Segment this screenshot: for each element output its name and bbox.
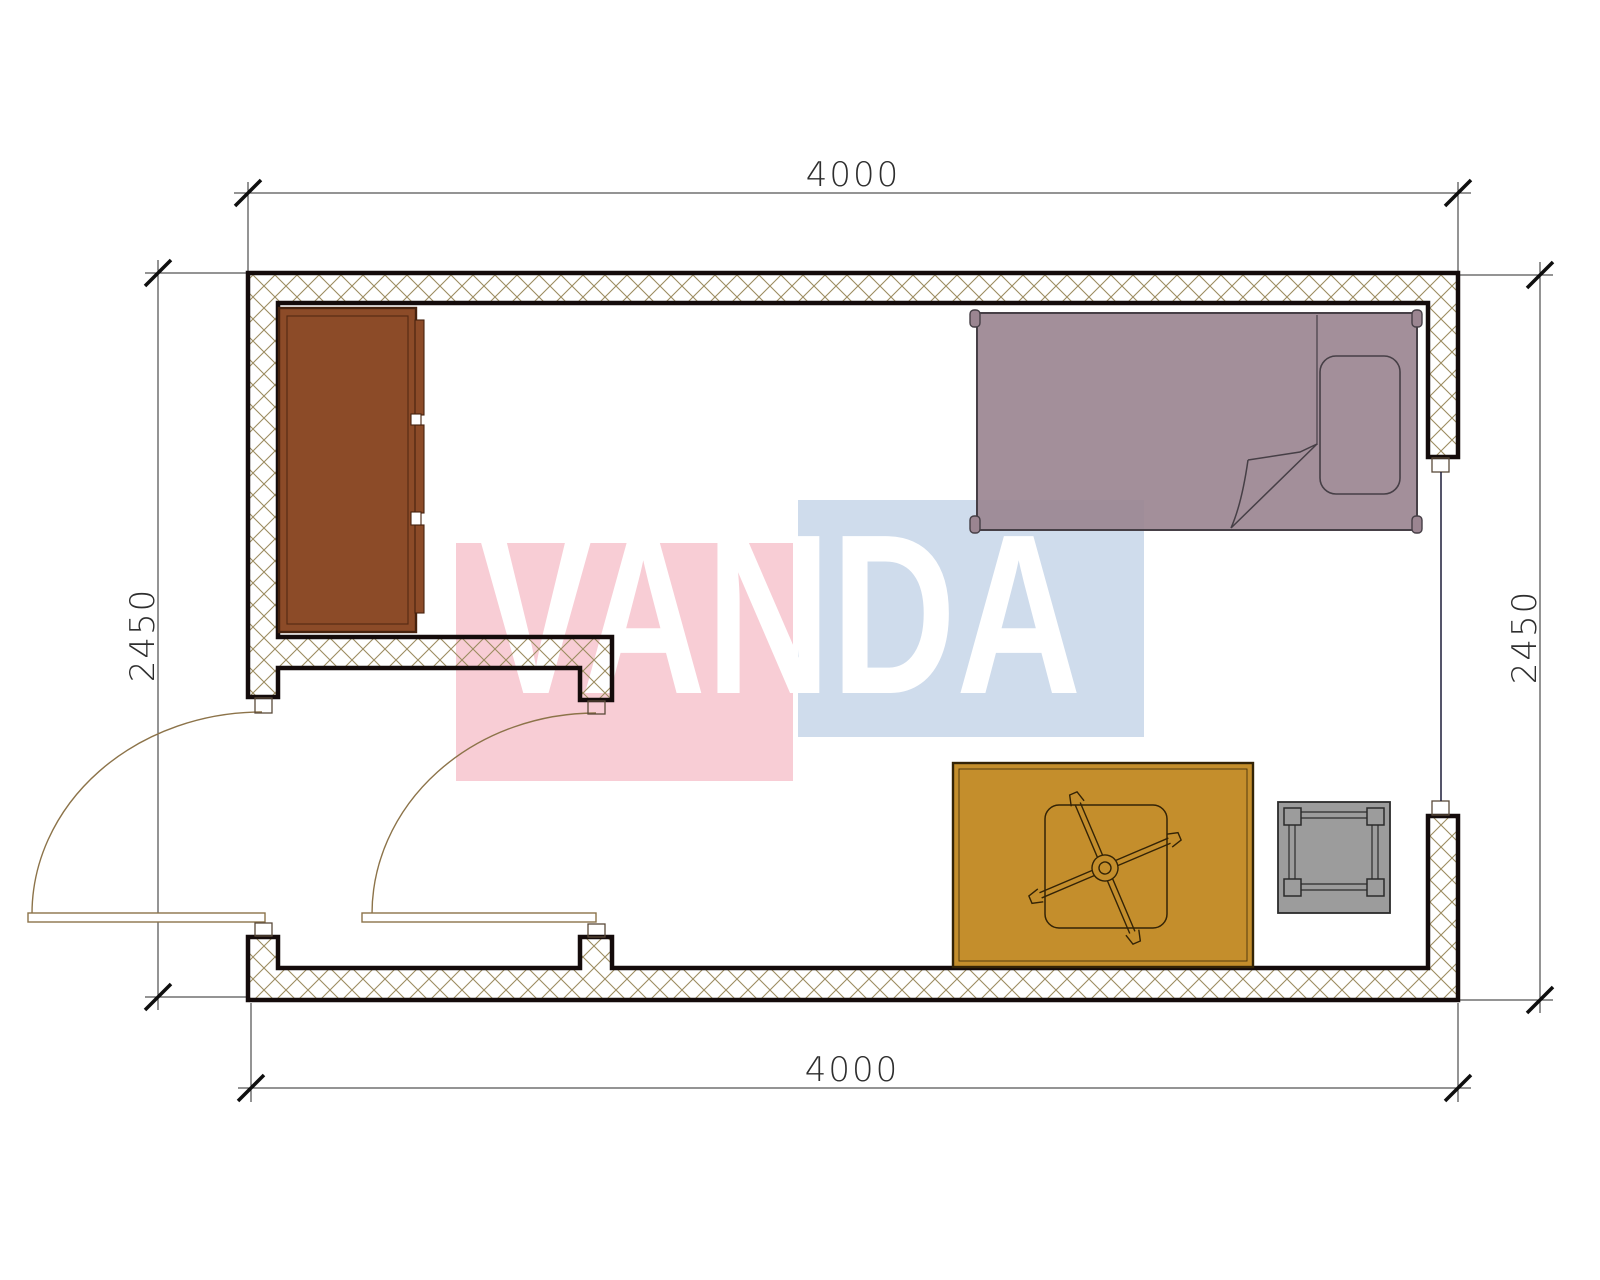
wall-lower-group — [248, 816, 1458, 1000]
bed-mattress — [977, 313, 1417, 530]
entrance-door-leaf — [28, 913, 265, 922]
window-jamb — [1432, 458, 1449, 472]
interior-door-leaf — [362, 913, 596, 922]
dimension-right-label: 2450 — [1505, 590, 1545, 685]
entrance-door-arc — [32, 712, 262, 914]
stool — [1278, 802, 1390, 913]
interior-door-arc — [372, 713, 596, 914]
floor-plan-svg: 4000 4000 2450 2450 — [0, 0, 1600, 1280]
single-bed — [970, 310, 1422, 533]
dimension-left-label: 2450 — [123, 588, 163, 683]
door-jamb — [255, 923, 272, 936]
wardrobe-handle — [411, 414, 421, 425]
wardrobe-handle — [411, 512, 421, 525]
window-jamb — [1432, 801, 1449, 815]
bed-post — [1412, 310, 1422, 327]
interior-door — [362, 713, 596, 922]
bed-post — [970, 516, 980, 533]
bed-post — [970, 310, 980, 327]
wardrobe — [279, 308, 424, 632]
dimension-bottom-label: 4000 — [805, 1050, 900, 1090]
entrance-door — [28, 712, 265, 922]
table — [953, 762, 1253, 974]
door-jamb — [588, 701, 605, 714]
floor-plan-page: VANDA — [0, 0, 1600, 1280]
bed-post — [1412, 516, 1422, 533]
dimension-top-label: 4000 — [806, 155, 901, 195]
door-jamb — [255, 698, 272, 713]
